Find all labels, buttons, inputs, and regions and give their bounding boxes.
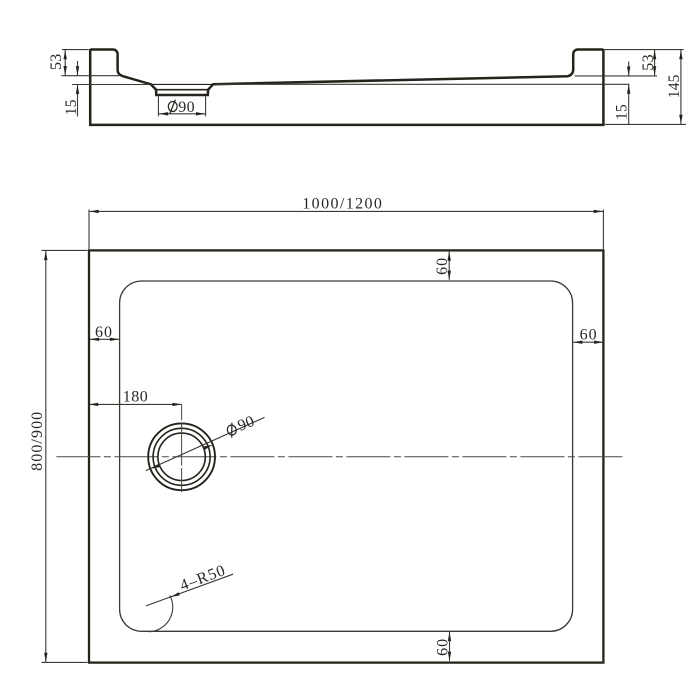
svg-text:53: 53 xyxy=(48,53,65,70)
svg-text:15: 15 xyxy=(63,99,80,115)
svg-text:1000/1200: 1000/1200 xyxy=(302,196,383,213)
svg-text:180: 180 xyxy=(123,389,149,406)
svg-text:90: 90 xyxy=(178,99,195,116)
svg-text:60: 60 xyxy=(434,257,451,275)
svg-text:53: 53 xyxy=(640,54,657,71)
svg-text:60: 60 xyxy=(95,324,113,341)
svg-text:145: 145 xyxy=(666,74,683,98)
svg-text:15: 15 xyxy=(614,104,631,120)
svg-text:60: 60 xyxy=(580,327,598,344)
svg-text:60: 60 xyxy=(434,638,451,656)
svg-text:800/900: 800/900 xyxy=(29,411,46,471)
